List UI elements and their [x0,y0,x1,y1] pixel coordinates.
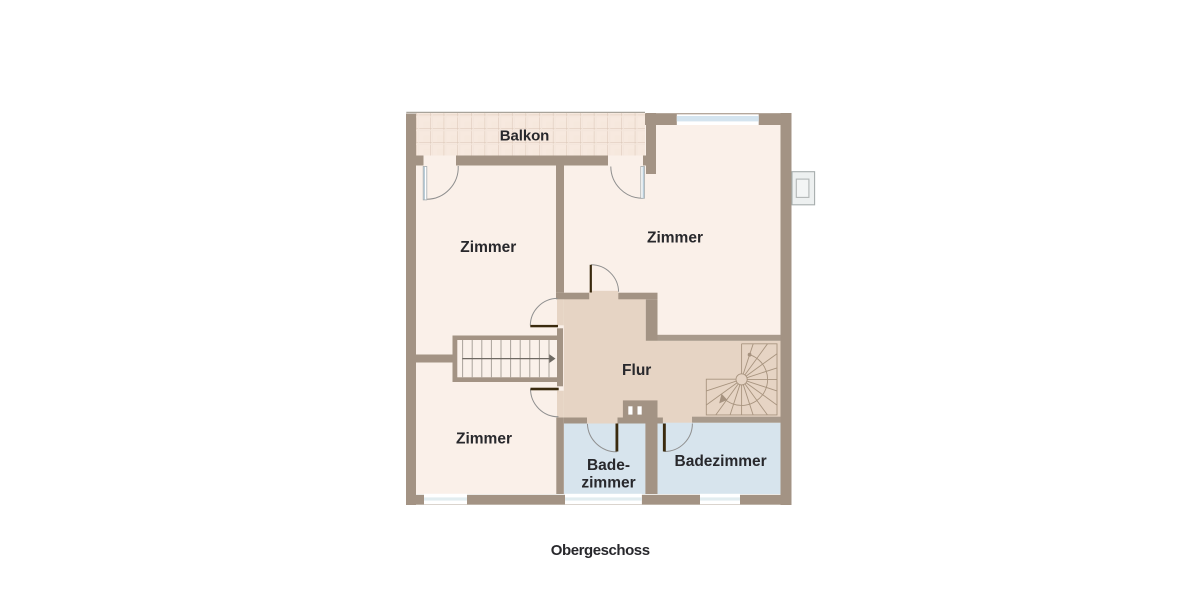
svg-text:zimmer: zimmer [581,475,635,492]
svg-text:Flur: Flur [622,362,651,379]
svg-text:Zimmer: Zimmer [460,239,516,256]
svg-text:Zimmer: Zimmer [456,431,512,448]
svg-text:Bade-: Bade- [587,457,630,474]
svg-text:Zimmer: Zimmer [647,229,703,246]
svg-text:Obergeschoss: Obergeschoss [551,542,650,559]
svg-text:Badezimmer: Badezimmer [675,453,767,470]
svg-text:Balkon: Balkon [500,128,549,145]
